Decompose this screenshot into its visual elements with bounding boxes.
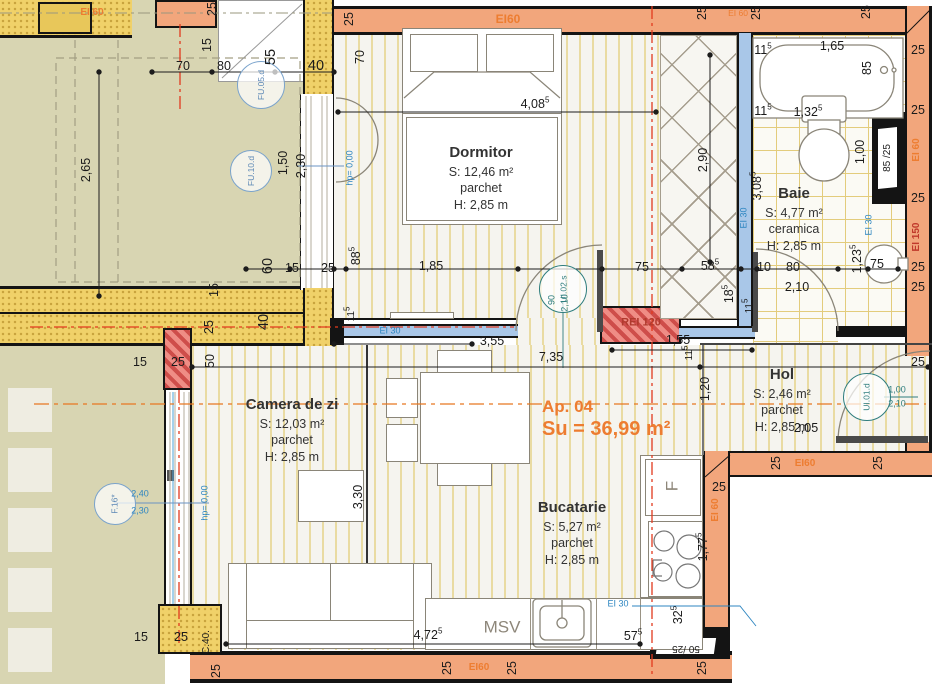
dim-label: 25 bbox=[712, 481, 726, 494]
dim-label: 2,65 bbox=[80, 158, 93, 182]
dim-label: 115 bbox=[347, 307, 357, 322]
sofa-cushion-line bbox=[330, 563, 331, 621]
terrace-tile bbox=[8, 448, 52, 492]
dim-label: 25 bbox=[696, 6, 709, 20]
wall-right-upper bbox=[905, 6, 929, 356]
radiator bbox=[390, 312, 454, 319]
dim-label: 10 bbox=[757, 261, 771, 274]
door-leaf-bedroom bbox=[597, 250, 603, 332]
apartment-total-area: Su = 36,99 m² bbox=[542, 417, 670, 442]
dim-label: 1,55 bbox=[666, 334, 690, 347]
dim-label: C.40. bbox=[202, 630, 212, 654]
dim-label: 25 bbox=[911, 356, 925, 369]
dim-label: 4,085 bbox=[521, 98, 550, 111]
dim-label: 15 bbox=[208, 283, 221, 297]
dim-label: 50 /25 bbox=[672, 643, 700, 653]
room-area: S: 2,46 m² bbox=[753, 386, 811, 403]
counter-divider bbox=[596, 598, 597, 650]
wall-bottom-left-corner bbox=[158, 604, 222, 654]
dim-label: 25 bbox=[206, 2, 219, 16]
dim-label: 25 bbox=[860, 5, 873, 19]
dim-label: 55 bbox=[264, 49, 279, 65]
sofa-back-line bbox=[246, 620, 414, 621]
room-height: H: 2,85 m bbox=[246, 449, 339, 466]
dim-label: hp= 0,00 bbox=[346, 150, 355, 185]
dim-label: 25 bbox=[750, 6, 763, 20]
dim-label: EI 60 bbox=[80, 8, 103, 18]
window-tag-fu10: FU.10.d bbox=[230, 150, 272, 192]
dim-label: 40 bbox=[308, 59, 324, 74]
dim-label: 2,30 bbox=[295, 154, 308, 178]
dim-label: 25 bbox=[203, 320, 216, 334]
glazed-partition-ei30 bbox=[679, 326, 755, 339]
bed-pillow bbox=[486, 34, 554, 72]
dim-label: 1,775 bbox=[697, 533, 710, 562]
dim-label: 585 bbox=[701, 260, 719, 273]
dim-label: 25 bbox=[210, 664, 223, 678]
terrace-tile bbox=[8, 568, 52, 612]
dim-label: REI 120 bbox=[621, 318, 661, 329]
living-window bbox=[164, 390, 192, 606]
dim-label: 1,00 bbox=[854, 140, 867, 164]
dim-label: EI 60 bbox=[728, 9, 748, 18]
chair bbox=[386, 424, 418, 462]
dim-label: 25 bbox=[506, 661, 519, 675]
dim-label: 15 bbox=[134, 631, 148, 644]
dim-label: 25 bbox=[911, 192, 925, 205]
room-label-baie: Baie S: 4,77 m² ceramica H: 2,85 m bbox=[765, 184, 823, 254]
chair bbox=[437, 350, 492, 374]
door-threshold bbox=[516, 318, 602, 345]
dim-label: 25 bbox=[171, 356, 185, 369]
dim-label: 115 bbox=[745, 299, 755, 314]
room-floor: parchet bbox=[449, 180, 514, 197]
dim-label: 1,50 bbox=[277, 151, 290, 175]
window-tag-fu05: FU.05.d bbox=[237, 61, 285, 109]
room-height: H: 2,85 m bbox=[449, 197, 514, 214]
kitchen-counter bbox=[425, 598, 703, 650]
dim-label: 115 bbox=[754, 105, 771, 118]
dim-label: 25 bbox=[911, 44, 925, 57]
dim-label: 25 bbox=[696, 661, 709, 675]
apartment-number: Ap. 04 bbox=[542, 396, 670, 417]
window-tag-label: F.16* bbox=[110, 494, 120, 513]
room-label-bucatarie: Bucatarie S: 5,27 m² parchet H: 2,85 m bbox=[538, 498, 606, 568]
room-name: Baie bbox=[765, 184, 823, 204]
dim-label: 3,55 bbox=[480, 335, 504, 348]
dim-label: 2,05 bbox=[794, 422, 818, 435]
wall-post bbox=[330, 318, 344, 345]
dim-label: 2,10 bbox=[785, 281, 809, 294]
room-name: Hol bbox=[753, 365, 811, 385]
dim-label: 25 bbox=[770, 456, 783, 470]
wardrobe bbox=[660, 35, 737, 319]
dim-label: 1,235 bbox=[851, 245, 864, 274]
sofa-arm-line bbox=[246, 563, 247, 649]
room-name: Dormitor bbox=[449, 143, 514, 163]
terrace-tile bbox=[8, 388, 52, 432]
room-area: S: 12,46 m² bbox=[449, 164, 514, 181]
dim-label: 115 bbox=[754, 44, 771, 57]
room-area: S: 5,27 m² bbox=[538, 519, 606, 536]
door-tag-ui01: UI.01.d bbox=[843, 373, 891, 421]
dim-label: EI60 bbox=[469, 663, 490, 673]
hol-north-line bbox=[700, 343, 932, 345]
dim-label: 80 bbox=[786, 261, 800, 274]
dim-label: EI 30 bbox=[740, 207, 749, 228]
door-threshold bbox=[753, 318, 838, 345]
dim-label: 75 bbox=[635, 261, 649, 274]
terrace-tile bbox=[8, 508, 52, 552]
dim-label: 25 bbox=[911, 281, 925, 294]
room-floor: parchet bbox=[538, 535, 606, 552]
room-floor: parchet bbox=[753, 402, 811, 419]
dim-label: 1,65 bbox=[820, 40, 844, 53]
dim-label: 60 bbox=[261, 258, 276, 274]
room-height: H: 2,85 m bbox=[538, 552, 606, 569]
room-floor: parchet bbox=[246, 432, 339, 449]
dim-label: 2,90 bbox=[697, 148, 710, 172]
dim-label: EI 30 bbox=[607, 600, 628, 609]
dim-label: 25 bbox=[911, 104, 925, 117]
dim-label: 885 bbox=[350, 247, 363, 265]
room-area: S: 12,03 m² bbox=[246, 416, 339, 433]
wall-party-vertical-upper bbox=[303, 0, 334, 96]
room-label-camera-de-zi: Camera de zi S: 12,03 m² parchet H: 2,85… bbox=[246, 395, 339, 465]
apartment-title: Ap. 04 Su = 36,99 m² bbox=[542, 396, 670, 442]
dim-label: 25 bbox=[321, 262, 335, 275]
dim-label: EI 60 bbox=[912, 138, 922, 161]
dim-label: 40 bbox=[257, 314, 272, 330]
dim-label: EI 30 bbox=[865, 214, 874, 235]
window-tag-label: FU.05.d bbox=[256, 70, 266, 100]
dim-label: 2,10 bbox=[561, 294, 570, 312]
dim-label: 85 /25 bbox=[883, 144, 893, 172]
room-name: Camera de zi bbox=[246, 395, 339, 415]
chair bbox=[386, 378, 418, 418]
room-height: H: 2,85 m bbox=[765, 238, 823, 255]
dim-label: 1,20 bbox=[699, 377, 712, 401]
dim-label: 115 bbox=[685, 346, 695, 361]
window-mullion bbox=[167, 470, 174, 481]
room-label-dormitor: Dormitor S: 12,46 m² parchet H: 2,85 m bbox=[449, 143, 514, 213]
dim-label: 325 bbox=[672, 606, 685, 624]
dim-label: 3,085 bbox=[751, 172, 764, 201]
dim-label: 1,325 bbox=[794, 106, 823, 119]
window-tag-f16: F.16* bbox=[94, 483, 136, 525]
room-area: S: 4,77 m² bbox=[765, 205, 823, 222]
wall-baie-south bbox=[836, 326, 906, 337]
dim-label: EI 30 bbox=[379, 327, 400, 336]
dim-label: 185 bbox=[723, 285, 736, 303]
dim-label: 25 bbox=[343, 12, 356, 26]
dim-label: 85 bbox=[861, 61, 874, 75]
dim-label: 25 bbox=[174, 631, 188, 644]
dim-label: 7,35 bbox=[539, 351, 563, 364]
dim-label: MSV bbox=[484, 619, 521, 636]
dim-label: 15 bbox=[285, 262, 299, 275]
dim-label: 75 bbox=[870, 258, 884, 271]
dim-label: 2,40 bbox=[131, 490, 149, 499]
floor-plan: Dormitor S: 12,46 m² parchet H: 2,85 m B… bbox=[0, 0, 932, 684]
terrace-tile bbox=[8, 628, 52, 672]
window-tag-label: FU.10.d bbox=[246, 156, 256, 186]
dim-label: 15 bbox=[201, 38, 214, 52]
dim-label: 4,725 bbox=[414, 629, 443, 642]
dim-label: EI 150 bbox=[912, 223, 922, 252]
wall-hol-south bbox=[728, 451, 932, 477]
dim-label: hp= 0,00 bbox=[201, 485, 210, 520]
dim-label: 2,30 bbox=[131, 507, 149, 516]
dim-label: 70 bbox=[354, 50, 367, 64]
counter-divider bbox=[530, 598, 531, 650]
dim-label: 25 bbox=[441, 661, 454, 675]
dining-table bbox=[420, 372, 530, 464]
dim-label: 2,10 bbox=[888, 400, 906, 409]
dim-label: 50 bbox=[204, 354, 217, 368]
bed-pillow bbox=[410, 34, 478, 72]
dim-label: 1,85 bbox=[419, 260, 443, 273]
dim-label: 15 bbox=[133, 356, 147, 369]
dim-label: 70 bbox=[176, 60, 190, 73]
room-floor: ceramica bbox=[765, 221, 823, 238]
chair bbox=[437, 462, 492, 486]
dim-label: EI60 bbox=[795, 459, 816, 469]
room-name: Bucatarie bbox=[538, 498, 606, 518]
dim-label: 25 bbox=[872, 456, 885, 470]
dim-label: 1,00 bbox=[888, 386, 906, 395]
dim-label: EI60 bbox=[496, 13, 521, 25]
door-tag-label: UI.01.d bbox=[862, 383, 872, 410]
dim-label: F bbox=[664, 481, 681, 491]
dim-label: 575 bbox=[624, 630, 642, 643]
dim-label: 3,30 bbox=[352, 485, 365, 509]
dim-label: EI 60 bbox=[711, 498, 721, 521]
dim-label: 80 bbox=[217, 60, 231, 73]
dim-label: 90 bbox=[548, 295, 557, 305]
dim-label: 25 bbox=[911, 261, 925, 274]
